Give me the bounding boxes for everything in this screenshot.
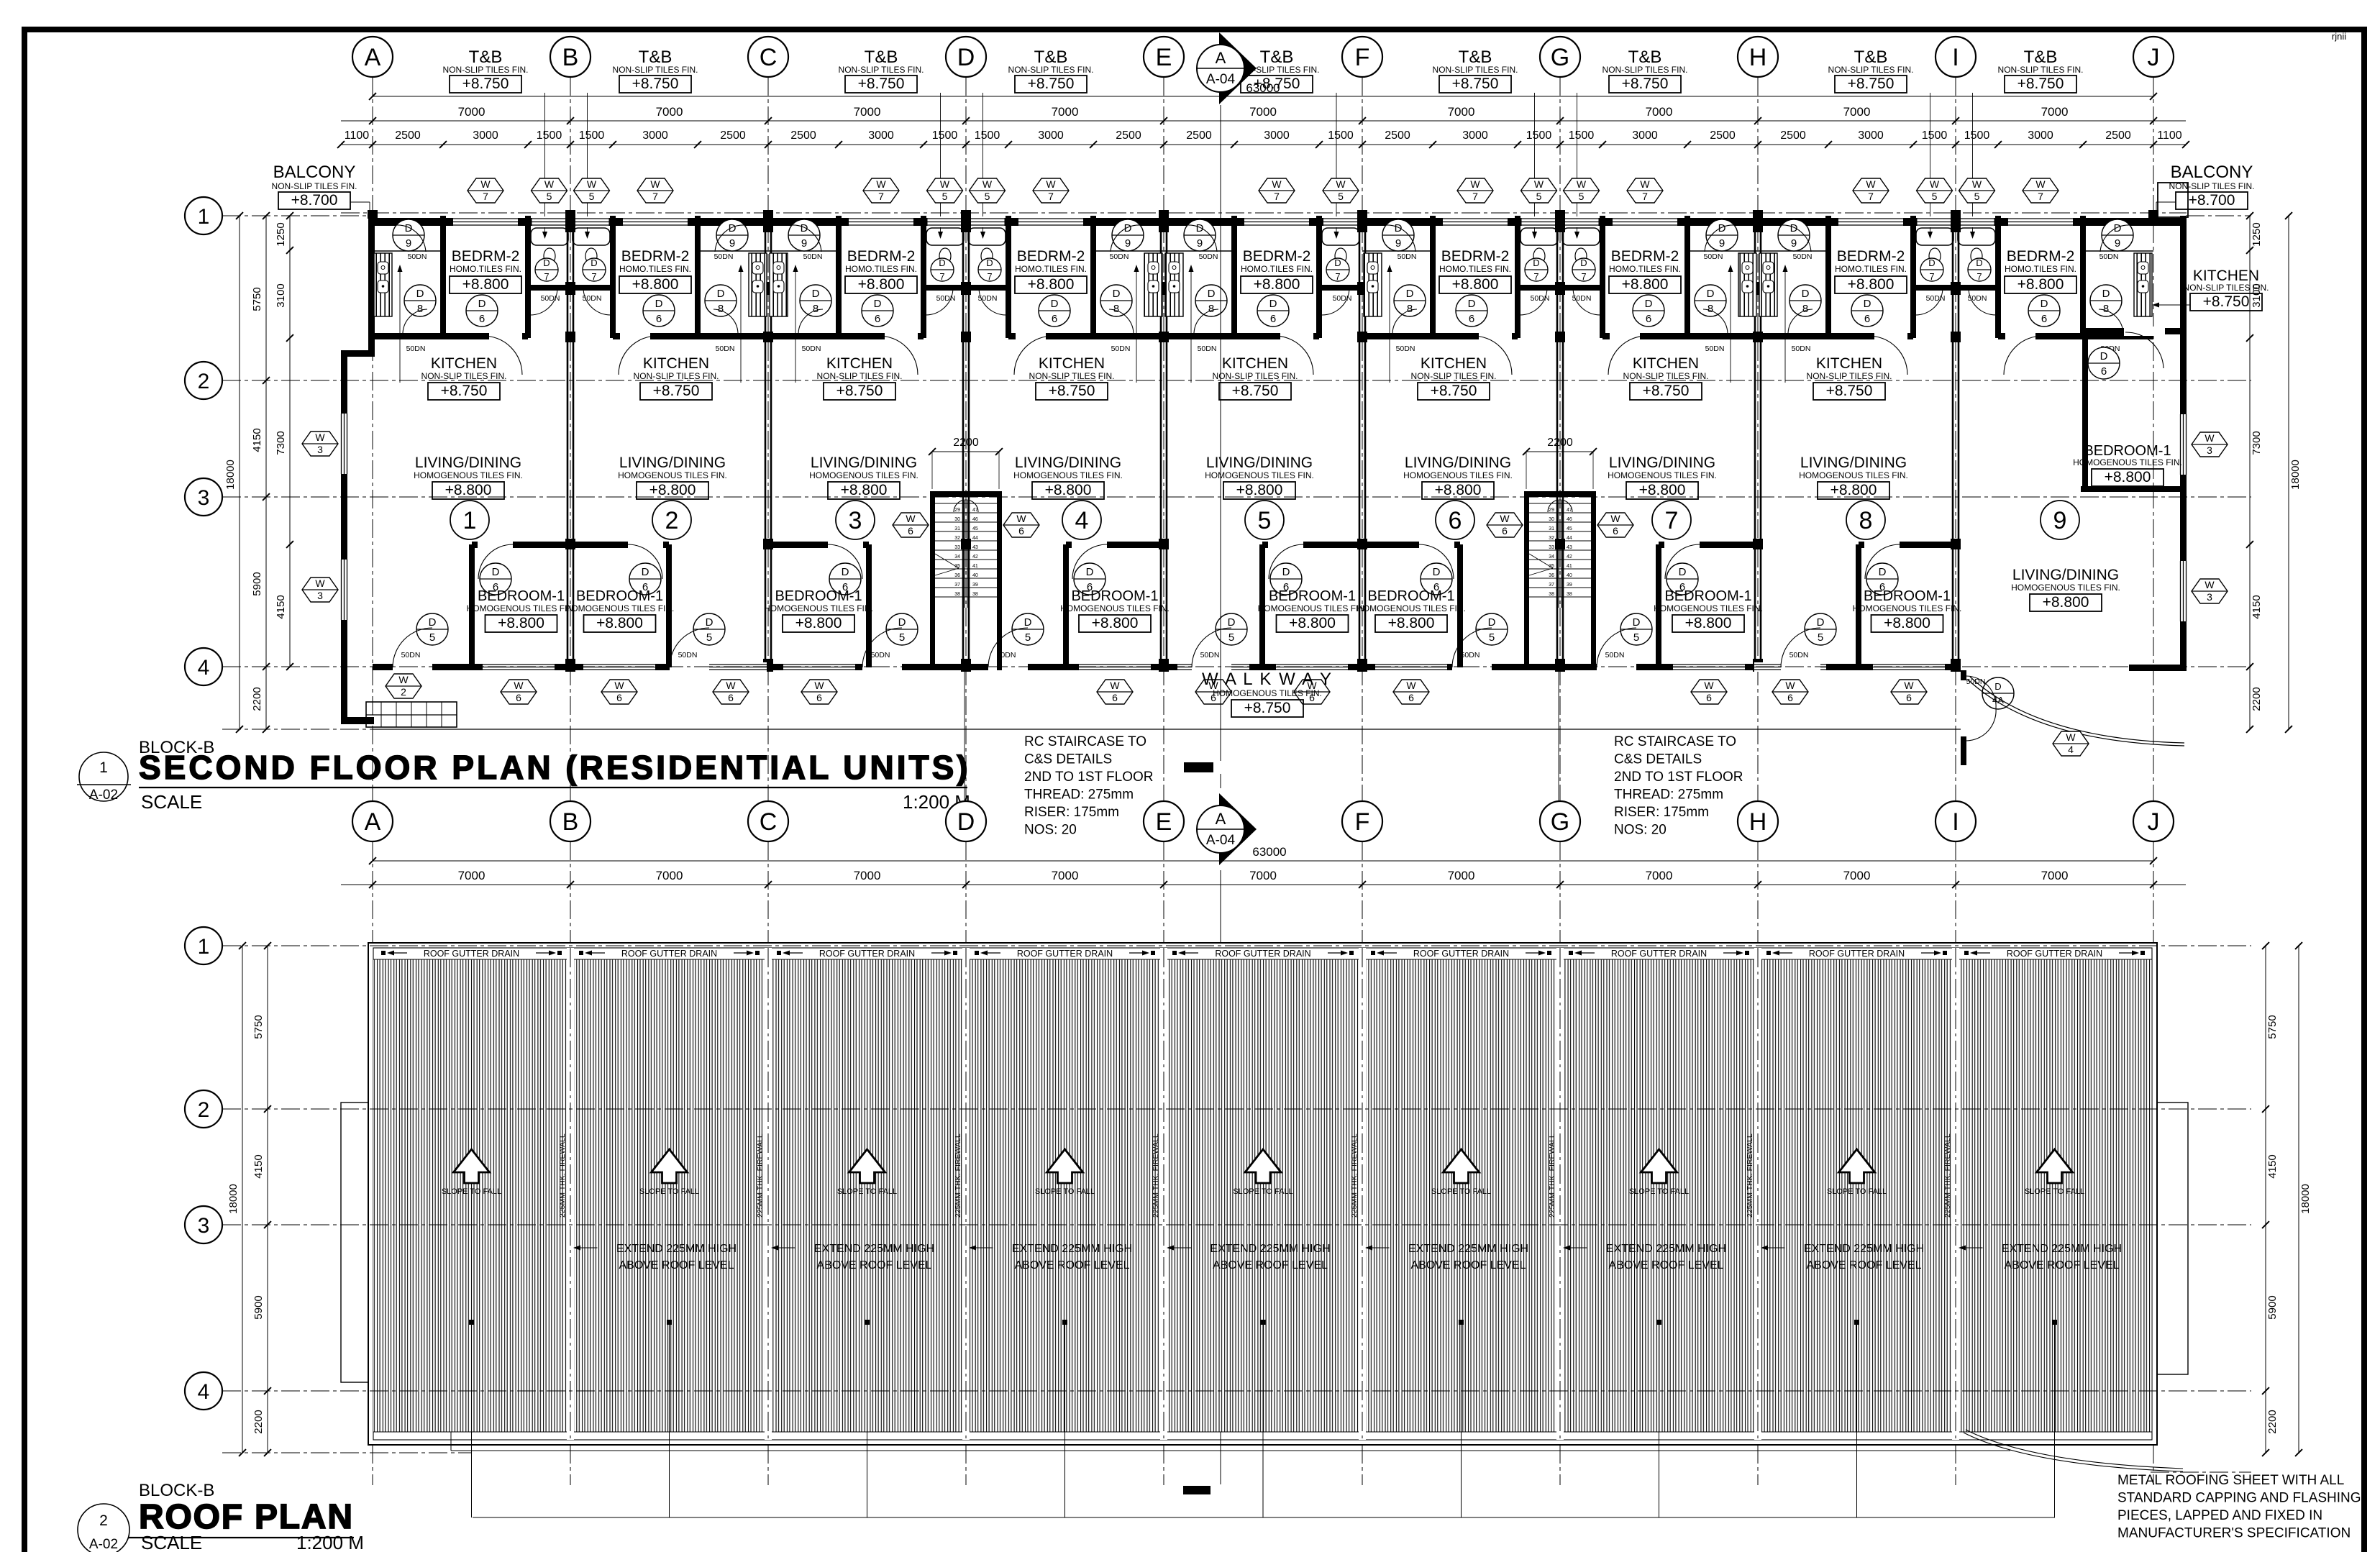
- svg-text:D: D: [898, 616, 906, 629]
- svg-text:E: E: [1156, 808, 1172, 836]
- svg-text:18000: 18000: [2299, 1184, 2312, 1214]
- svg-text:7: 7: [1977, 271, 1982, 282]
- svg-text:ROOF GUTTER DRAIN: ROOF GUTTER DRAIN: [621, 949, 717, 959]
- svg-text:D: D: [1864, 298, 1871, 310]
- svg-text:31: 31: [1549, 526, 1554, 531]
- svg-text:42: 42: [1567, 554, 1572, 560]
- svg-text:7000: 7000: [1448, 105, 1475, 119]
- svg-text:THREAD: 275mm: THREAD: 275mm: [1024, 788, 1134, 803]
- svg-text:5: 5: [1489, 631, 1495, 644]
- svg-text:7: 7: [1665, 507, 1679, 534]
- svg-text:38: 38: [1549, 592, 1554, 597]
- svg-text:HOMOGENOUS TILES FIN.: HOMOGENOUS TILES FIN.: [1060, 603, 1170, 613]
- svg-text:E: E: [1156, 44, 1172, 71]
- svg-text:6: 6: [1449, 507, 1462, 534]
- svg-text:D: D: [1928, 257, 1935, 268]
- svg-text:9: 9: [2053, 507, 2067, 534]
- svg-text:+8.750: +8.750: [1826, 383, 1873, 399]
- svg-text:2ND TO 1ST FLOOR: 2ND TO 1ST FLOOR: [1614, 770, 1743, 785]
- svg-text:BLOCK-B: BLOCK-B: [139, 1481, 214, 1500]
- svg-text:50DN: 50DN: [936, 294, 956, 303]
- svg-text:HOMOGENOUS TILES FIN.: HOMOGENOUS TILES FIN.: [1799, 470, 1908, 480]
- svg-text:3: 3: [317, 444, 323, 455]
- svg-text:40: 40: [972, 573, 978, 578]
- svg-text:7: 7: [1929, 271, 1934, 282]
- svg-text:I: I: [1952, 808, 1959, 836]
- svg-text:1500: 1500: [1922, 129, 1948, 142]
- svg-text:7000: 7000: [1646, 105, 1673, 119]
- svg-text:KITCHEN: KITCHEN: [1421, 355, 1487, 372]
- svg-text:8: 8: [2103, 303, 2109, 315]
- svg-text:3: 3: [317, 590, 323, 601]
- svg-text:3000: 3000: [2028, 129, 2053, 142]
- svg-text:H: H: [1749, 808, 1767, 836]
- svg-text:+8.800: +8.800: [1028, 276, 1075, 293]
- svg-text:2200: 2200: [251, 687, 263, 711]
- svg-text:LIVING/DINING: LIVING/DINING: [1015, 455, 1121, 471]
- svg-text:33: 33: [954, 545, 960, 550]
- svg-text:D: D: [1679, 566, 1687, 578]
- svg-text:HOMOGENOUS TILES FIN.: HOMOGENOUS TILES FIN.: [618, 470, 727, 480]
- svg-text:NON-SLIP TILES FIN.: NON-SLIP TILES FIN.: [634, 371, 719, 381]
- svg-text:+8.700: +8.700: [291, 192, 338, 209]
- svg-text:7000: 7000: [1052, 869, 1079, 882]
- svg-text:1500: 1500: [1964, 129, 1990, 142]
- svg-text:50DN: 50DN: [1704, 252, 1723, 261]
- svg-text:5: 5: [1818, 631, 1823, 644]
- svg-text:EXTEND 225MM HIGH: EXTEND 225MM HIGH: [1408, 1243, 1528, 1255]
- svg-text:KITCHEN: KITCHEN: [1816, 355, 1882, 372]
- svg-text:LIVING/DINING: LIVING/DINING: [1609, 455, 1715, 471]
- svg-text:50DN: 50DN: [1396, 344, 1415, 353]
- svg-text:32: 32: [1549, 536, 1554, 541]
- svg-text:1100: 1100: [345, 129, 370, 142]
- svg-text:SCALE: SCALE: [141, 791, 202, 813]
- svg-text:KITCHEN: KITCHEN: [1222, 355, 1288, 372]
- svg-text:5: 5: [706, 631, 712, 644]
- svg-text:6: 6: [1906, 692, 1912, 703]
- svg-text:D: D: [986, 257, 993, 268]
- svg-text:45: 45: [1567, 526, 1572, 531]
- svg-text:7: 7: [1274, 191, 1280, 202]
- svg-text:6: 6: [656, 313, 662, 325]
- svg-text:+8.800: +8.800: [841, 482, 888, 498]
- svg-text:D: D: [1817, 616, 1825, 629]
- svg-text:5: 5: [1025, 631, 1031, 644]
- svg-text:7: 7: [878, 191, 884, 202]
- svg-text:44: 44: [1567, 536, 1572, 541]
- svg-text:9: 9: [1791, 237, 1797, 250]
- svg-text:ABOVE ROOF LEVEL: ABOVE ROOF LEVEL: [1806, 1259, 1921, 1272]
- svg-text:39: 39: [1567, 583, 1572, 588]
- svg-text:D: D: [416, 288, 424, 300]
- svg-text:8: 8: [1708, 303, 1713, 315]
- svg-text:5: 5: [1228, 631, 1234, 644]
- svg-text:63000: 63000: [1252, 845, 1286, 859]
- svg-text:5750: 5750: [252, 1015, 265, 1039]
- svg-text:7000: 7000: [854, 105, 881, 119]
- svg-text:NOS: 20: NOS: 20: [1024, 823, 1077, 838]
- svg-text:T&B: T&B: [1628, 47, 1662, 67]
- svg-text:7: 7: [2038, 191, 2043, 202]
- svg-text:7: 7: [1533, 271, 1538, 282]
- svg-text:5: 5: [1536, 191, 1542, 202]
- svg-text:5: 5: [1258, 507, 1272, 534]
- svg-text:4150: 4150: [2266, 1154, 2279, 1178]
- svg-text:41: 41: [1567, 564, 1572, 569]
- svg-text:5900: 5900: [251, 572, 263, 595]
- svg-text:LIVING/DINING: LIVING/DINING: [811, 455, 917, 471]
- svg-text:225MM THK. FIREWALL: 225MM THK. FIREWALL: [756, 1133, 765, 1218]
- svg-text:6: 6: [516, 692, 521, 703]
- svg-text:W: W: [480, 178, 491, 190]
- svg-text:+8.800: +8.800: [1289, 615, 1336, 631]
- svg-text:225MM THK. FIREWALL: 225MM THK. FIREWALL: [1548, 1133, 1556, 1218]
- svg-text:6: 6: [1408, 692, 1414, 703]
- svg-text:1250: 1250: [2251, 222, 2263, 246]
- svg-text:8: 8: [718, 303, 724, 315]
- svg-text:50DN: 50DN: [803, 252, 823, 261]
- svg-text:+8.750: +8.750: [858, 76, 905, 92]
- svg-text:SCALE: SCALE: [141, 1532, 202, 1552]
- svg-text:7000: 7000: [854, 869, 881, 882]
- svg-text:PIECES, LAPPED AND FIXED IN: PIECES, LAPPED AND FIXED IN: [2117, 1508, 2322, 1523]
- svg-text:D: D: [939, 257, 945, 268]
- svg-text:NON-SLIP TILES FIN.: NON-SLIP TILES FIN.: [817, 371, 903, 381]
- svg-text:50DN: 50DN: [978, 294, 998, 303]
- svg-text:225MM THK. FIREWALL: 225MM THK. FIREWALL: [1746, 1133, 1754, 1218]
- svg-text:5: 5: [1974, 191, 1980, 202]
- svg-text:3000: 3000: [642, 129, 668, 142]
- svg-text:BEDRM-2: BEDRM-2: [621, 248, 690, 265]
- svg-text:W: W: [1930, 178, 1940, 190]
- svg-text:W: W: [876, 178, 886, 190]
- svg-text:HOMOGENOUS TILES FIN.: HOMOGENOUS TILES FIN.: [1853, 603, 1962, 613]
- svg-text:6: 6: [1706, 692, 1712, 703]
- svg-text:SLOPE TO FALL: SLOPE TO FALL: [837, 1187, 897, 1196]
- svg-text:50DN: 50DN: [1605, 651, 1625, 659]
- svg-text:7000: 7000: [656, 869, 683, 882]
- svg-text:225MM THK. FIREWALL: 225MM THK. FIREWALL: [558, 1133, 567, 1218]
- svg-text:KITCHEN: KITCHEN: [2193, 268, 2259, 284]
- svg-text:ROOF GUTTER DRAIN: ROOF GUTTER DRAIN: [2007, 949, 2102, 959]
- svg-text:1500: 1500: [932, 129, 958, 142]
- svg-text:50DN: 50DN: [408, 252, 427, 261]
- svg-text:ABOVE ROOF LEVEL: ABOVE ROOF LEVEL: [619, 1259, 734, 1272]
- svg-text:D: D: [1645, 298, 1653, 310]
- svg-text:HOMO.TILES FIN.: HOMO.TILES FIN.: [1439, 264, 1511, 274]
- svg-text:W: W: [587, 178, 597, 190]
- svg-text:9: 9: [1197, 237, 1203, 250]
- svg-text:5: 5: [1633, 631, 1639, 644]
- svg-text:+8.750: +8.750: [1049, 383, 1095, 399]
- svg-text:35: 35: [1549, 564, 1554, 569]
- svg-text:2500: 2500: [720, 129, 746, 142]
- svg-text:W: W: [544, 178, 555, 190]
- svg-text:1250: 1250: [275, 222, 287, 246]
- svg-text:HOMOGENOUS TILES FIN.: HOMOGENOUS TILES FIN.: [1357, 603, 1466, 613]
- svg-text:W: W: [1640, 178, 1650, 190]
- svg-text:35: 35: [954, 564, 960, 569]
- svg-text:KITCHEN: KITCHEN: [1633, 355, 1699, 372]
- svg-text:+8.800: +8.800: [795, 615, 842, 631]
- svg-text:C: C: [760, 808, 778, 836]
- svg-text:44: 44: [972, 536, 978, 541]
- svg-text:RC STAIRCASE TO: RC STAIRCASE TO: [1614, 734, 1736, 749]
- svg-text:I: I: [1952, 44, 1959, 71]
- svg-text:D: D: [1113, 288, 1121, 300]
- svg-text:D: D: [478, 298, 486, 310]
- svg-text:5: 5: [589, 191, 595, 202]
- svg-text:+8.800: +8.800: [1639, 482, 1686, 498]
- svg-text:D: D: [1468, 298, 1476, 310]
- svg-text:50DN: 50DN: [1926, 294, 1946, 303]
- svg-text:+8.800: +8.800: [632, 276, 679, 293]
- svg-text:6: 6: [1270, 313, 1276, 325]
- svg-text:SLOPE TO FALL: SLOPE TO FALL: [442, 1187, 501, 1196]
- svg-text:HOMOGENOUS TILES FIN.: HOMOGENOUS TILES FIN.: [764, 603, 873, 613]
- svg-text:KITCHEN: KITCHEN: [431, 355, 497, 372]
- svg-text:50DN: 50DN: [1792, 344, 1811, 353]
- svg-text:+8.750: +8.750: [836, 383, 883, 399]
- svg-text:3000: 3000: [1462, 129, 1488, 142]
- svg-text:BEDRM-2: BEDRM-2: [1243, 248, 1311, 265]
- svg-text:4: 4: [198, 656, 210, 680]
- svg-text:7000: 7000: [1843, 869, 1871, 882]
- svg-text:BEDROOM-1: BEDROOM-1: [478, 588, 565, 604]
- svg-text:+8.800: +8.800: [498, 615, 544, 631]
- svg-text:NON-SLIP TILES FIN.: NON-SLIP TILES FIN.: [613, 65, 698, 75]
- svg-text:8: 8: [1407, 303, 1413, 315]
- svg-text:2500: 2500: [2105, 129, 2131, 142]
- svg-text:D: D: [957, 808, 975, 836]
- svg-text:18000: 18000: [224, 460, 237, 490]
- svg-text:D: D: [1633, 616, 1641, 629]
- svg-text:+8.750: +8.750: [1244, 700, 1291, 716]
- svg-text:W: W: [2066, 731, 2076, 743]
- svg-text:1500: 1500: [1569, 129, 1595, 142]
- svg-text:18000: 18000: [227, 1184, 240, 1214]
- svg-text:+8.750: +8.750: [441, 383, 488, 399]
- svg-text:5: 5: [429, 631, 435, 644]
- svg-text:7300: 7300: [2251, 431, 2263, 455]
- svg-text:W: W: [1577, 178, 1587, 190]
- svg-text:D: D: [957, 44, 975, 71]
- svg-text:2: 2: [401, 686, 406, 698]
- svg-text:G: G: [1551, 44, 1569, 71]
- svg-text:KITCHEN: KITCHEN: [826, 355, 893, 372]
- svg-text:50DN: 50DN: [1531, 294, 1550, 303]
- svg-text:ROOF GUTTER DRAIN: ROOF GUTTER DRAIN: [1413, 949, 1509, 959]
- svg-text:7000: 7000: [458, 869, 485, 882]
- svg-text:29: 29: [954, 508, 960, 513]
- svg-text:7: 7: [591, 271, 596, 282]
- svg-text:+8.750: +8.750: [1643, 383, 1690, 399]
- svg-text:F: F: [1355, 808, 1370, 836]
- svg-text:D: D: [1051, 298, 1059, 310]
- svg-text:36: 36: [1549, 573, 1554, 578]
- svg-text:W: W: [1110, 680, 1120, 691]
- svg-text:3000: 3000: [1038, 129, 1064, 142]
- svg-text:50DN: 50DN: [1199, 252, 1218, 261]
- svg-text:6: 6: [616, 692, 622, 703]
- svg-text:50DN: 50DN: [802, 344, 821, 353]
- svg-text:5750: 5750: [251, 287, 263, 311]
- svg-text:BEDROOM-1: BEDROOM-1: [775, 588, 862, 604]
- svg-text:+8.800: +8.800: [1452, 276, 1499, 293]
- svg-text:1500: 1500: [1526, 129, 1552, 142]
- svg-text:C: C: [760, 44, 778, 71]
- svg-text:BEDRM-2: BEDRM-2: [1837, 248, 1905, 265]
- svg-text:9: 9: [406, 237, 411, 250]
- svg-text:ROOF PLAN: ROOF PLAN: [139, 1498, 354, 1536]
- svg-text:+8.750: +8.750: [1622, 76, 1669, 92]
- svg-text:7000: 7000: [1249, 105, 1277, 119]
- svg-text:RC STAIRCASE TO: RC STAIRCASE TO: [1024, 734, 1146, 749]
- svg-text:+8.800: +8.800: [1830, 482, 1877, 498]
- svg-text:5: 5: [1579, 191, 1585, 202]
- svg-text:HOMO.TILES FIN.: HOMO.TILES FIN.: [1241, 264, 1313, 274]
- svg-text:HOMO.TILES FIN.: HOMO.TILES FIN.: [450, 264, 521, 274]
- svg-text:38: 38: [954, 592, 960, 597]
- svg-text:NON-SLIP TILES FIN.: NON-SLIP TILES FIN.: [421, 371, 507, 381]
- svg-text:C&S DETAILS: C&S DETAILS: [1614, 752, 1702, 767]
- svg-text:7: 7: [1642, 191, 1648, 202]
- svg-text:3: 3: [2207, 591, 2212, 603]
- svg-text:43: 43: [1567, 545, 1572, 550]
- svg-text:225MM THK. FIREWALL: 225MM THK. FIREWALL: [1350, 1133, 1359, 1218]
- svg-text:B: B: [562, 808, 579, 836]
- svg-text:5: 5: [942, 191, 948, 202]
- svg-text:A: A: [365, 44, 381, 71]
- svg-text:T&B: T&B: [1459, 47, 1492, 67]
- svg-text:7000: 7000: [1052, 105, 1079, 119]
- svg-text:1: 1: [198, 205, 210, 229]
- svg-text:7: 7: [1868, 191, 1874, 202]
- svg-text:HOMO.TILES FIN.: HOMO.TILES FIN.: [1609, 264, 1681, 274]
- svg-text:W A L K W A Y: W A L K W A Y: [1202, 670, 1333, 689]
- svg-text:+8.800: +8.800: [1884, 615, 1930, 631]
- svg-text:BEDROOM-1: BEDROOM-1: [1864, 588, 1951, 604]
- svg-text:W: W: [398, 674, 409, 685]
- svg-text:1:200 M: 1:200 M: [296, 1532, 364, 1552]
- svg-text:J: J: [2148, 808, 2160, 836]
- svg-text:+8.750: +8.750: [2017, 76, 2064, 92]
- svg-text:50DN: 50DN: [1200, 651, 1220, 659]
- svg-text:T&B: T&B: [1854, 47, 1888, 67]
- svg-text:7: 7: [1335, 271, 1340, 282]
- svg-text:50DN: 50DN: [406, 344, 426, 353]
- svg-text:NON-SLIP TILES FIN.: NON-SLIP TILES FIN.: [839, 65, 924, 75]
- svg-text:3: 3: [2207, 444, 2212, 456]
- svg-text:7000: 7000: [2041, 869, 2069, 882]
- svg-text:2200: 2200: [953, 437, 979, 449]
- svg-text:29: 29: [1549, 508, 1554, 513]
- svg-text:F: F: [1355, 44, 1370, 71]
- svg-text:4: 4: [198, 1380, 210, 1404]
- svg-text:8: 8: [1859, 507, 1873, 534]
- svg-text:34: 34: [1549, 554, 1554, 560]
- svg-text:LIVING/DINING: LIVING/DINING: [2012, 567, 2119, 583]
- svg-text:2: 2: [665, 507, 679, 534]
- svg-text:A-02: A-02: [89, 788, 118, 803]
- svg-text:ABOVE ROOF LEVEL: ABOVE ROOF LEVEL: [1410, 1259, 1526, 1272]
- svg-text:50DN: 50DN: [541, 294, 560, 303]
- svg-text:NON-SLIP TILES FIN.: NON-SLIP TILES FIN.: [1411, 371, 1497, 381]
- svg-text:W: W: [982, 178, 993, 190]
- svg-text:5: 5: [899, 631, 905, 644]
- svg-text:50DN: 50DN: [714, 252, 734, 261]
- svg-text:37: 37: [1549, 583, 1554, 588]
- svg-text:D: D: [812, 288, 820, 300]
- svg-text:7300: 7300: [275, 431, 287, 455]
- svg-text:4150: 4150: [251, 428, 263, 452]
- svg-text:NON-SLIP TILES FIN.: NON-SLIP TILES FIN.: [272, 181, 357, 191]
- svg-text:3100: 3100: [275, 283, 287, 307]
- svg-text:D: D: [1580, 257, 1587, 268]
- svg-text:7: 7: [987, 271, 992, 282]
- svg-text:1500: 1500: [975, 129, 1000, 142]
- svg-text:+8.750: +8.750: [1254, 76, 1300, 92]
- svg-text:5: 5: [547, 191, 552, 202]
- svg-text:+8.750: +8.750: [462, 76, 509, 92]
- svg-text:ROOF GUTTER DRAIN: ROOF GUTTER DRAIN: [424, 949, 519, 959]
- svg-text:HOMOGENOUS TILES FIN.: HOMOGENOUS TILES FIN.: [1205, 470, 1314, 480]
- svg-text:D: D: [1433, 566, 1441, 578]
- svg-text:47: 47: [1567, 508, 1572, 513]
- svg-text:D: D: [2041, 298, 2048, 310]
- svg-text:NON-SLIP TILES FIN.: NON-SLIP TILES FIN.: [443, 65, 529, 75]
- svg-text:46: 46: [1567, 517, 1572, 522]
- svg-text:NON-SLIP TILES FIN.: NON-SLIP TILES FIN.: [1433, 65, 1518, 75]
- svg-text:D: D: [492, 566, 500, 578]
- svg-text:6: 6: [1018, 525, 1024, 537]
- svg-text:+8.750: +8.750: [1028, 76, 1075, 92]
- svg-text:7: 7: [1581, 271, 1586, 282]
- svg-text:A: A: [1216, 49, 1226, 67]
- svg-text:1500: 1500: [579, 129, 605, 142]
- svg-text:D: D: [655, 298, 663, 310]
- svg-text:HOMOGENOUS TILES FIN.: HOMOGENOUS TILES FIN.: [2073, 457, 2182, 467]
- svg-text:C&S DETAILS: C&S DETAILS: [1024, 752, 1112, 767]
- svg-text:3: 3: [849, 507, 862, 534]
- svg-text:+8.800: +8.800: [1435, 482, 1482, 498]
- svg-text:METAL ROOFING SHEET WITH ALL: METAL ROOFING SHEET WITH ALL: [2117, 1473, 2344, 1488]
- svg-text:6: 6: [1646, 313, 1651, 325]
- svg-text:9: 9: [801, 237, 807, 250]
- svg-text:BEDROOM-1: BEDROOM-1: [1367, 588, 1454, 604]
- svg-text:HOMO.TILES FIN.: HOMO.TILES FIN.: [845, 264, 917, 274]
- svg-text:HOMOGENOUS TILES FIN.: HOMOGENOUS TILES FIN.: [565, 603, 675, 613]
- svg-text:W: W: [2205, 579, 2215, 590]
- svg-text:18000: 18000: [2289, 460, 2302, 490]
- svg-text:D: D: [1879, 566, 1887, 578]
- svg-text:+8.800: +8.800: [2017, 276, 2064, 293]
- svg-text:ABOVE ROOF LEVEL: ABOVE ROOF LEVEL: [816, 1259, 931, 1272]
- svg-text:W: W: [1336, 178, 1346, 190]
- svg-text:T&B: T&B: [2024, 47, 2058, 67]
- svg-text:EXTEND 225MM HIGH: EXTEND 225MM HIGH: [1804, 1243, 1924, 1255]
- svg-text:H: H: [1749, 44, 1767, 71]
- svg-text:2200: 2200: [1547, 437, 1573, 449]
- svg-text:W: W: [906, 513, 916, 524]
- svg-text:ABOVE ROOF LEVEL: ABOVE ROOF LEVEL: [1213, 1259, 1328, 1272]
- svg-text:7000: 7000: [1646, 869, 1673, 882]
- svg-text:D: D: [1994, 681, 2001, 692]
- svg-text:2: 2: [198, 1098, 210, 1122]
- svg-text:LIVING/DINING: LIVING/DINING: [1800, 455, 1907, 471]
- svg-text:+8.800: +8.800: [1254, 276, 1300, 293]
